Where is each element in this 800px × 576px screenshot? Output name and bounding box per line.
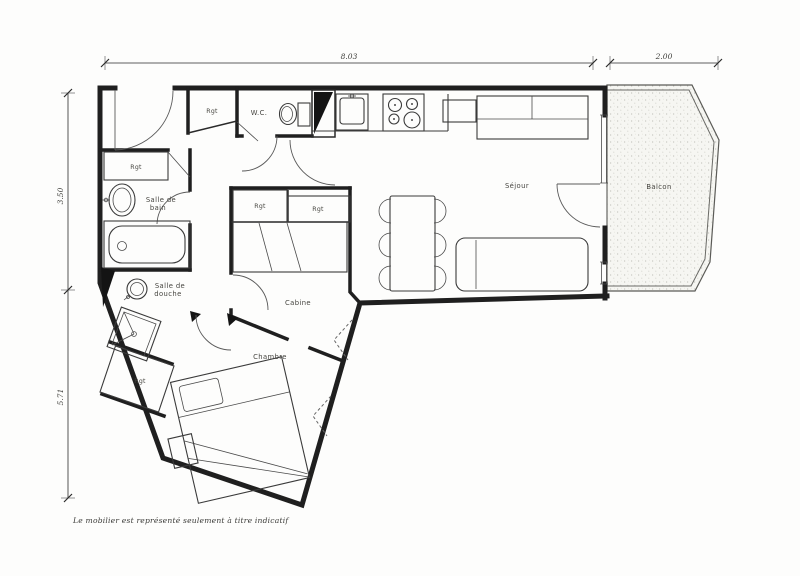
label-salle-de-douche-1: Salle de [155, 282, 185, 290]
sideboard-large [477, 96, 588, 139]
wall-wedge-left [190, 311, 201, 322]
label-balcon: Balcon [646, 183, 671, 191]
label-rgt-bath: Rgt [130, 164, 142, 171]
floor-plan-drawing: 8.03 2.00 3.50 5.71 [0, 0, 800, 576]
label-salle-de-bain-2: bain [150, 204, 166, 212]
cabine-door [233, 275, 268, 310]
duct-fill [314, 92, 333, 134]
balcony-door [557, 184, 600, 227]
chair [434, 233, 446, 257]
toilet-fixture [280, 103, 311, 126]
label-rgt-chambre: Rgt [134, 378, 146, 385]
kitchen-counter [312, 94, 448, 131]
label-rgt-cabine-right: Rgt [312, 206, 324, 213]
bathtub [104, 221, 190, 268]
dim-main-width: 8.03 [341, 52, 358, 61]
kitchen-sink [336, 94, 368, 130]
label-chambre: Chambre [253, 353, 287, 361]
cabine-bunk [233, 222, 347, 272]
floor-plan-page: 8.03 2.00 3.50 5.71 [0, 0, 800, 576]
caption-note: Le mobilier est représenté seulement à t… [72, 516, 289, 525]
chair [434, 199, 446, 223]
chair [434, 266, 446, 290]
dim-left-lower: 5.71 [56, 389, 65, 406]
entrance-door [115, 90, 173, 150]
chambre-door [196, 315, 231, 350]
label-wc: W.C. [251, 109, 268, 117]
stove [383, 94, 424, 131]
cabine-furniture [233, 190, 350, 272]
label-salle-de-bain-1: Salle de [146, 196, 176, 204]
chair [379, 233, 391, 257]
chair [379, 266, 391, 290]
sejour-furniture [379, 96, 588, 291]
label-cabine: Cabine [285, 299, 311, 307]
dim-balcony-width: 2.00 [655, 52, 673, 61]
label-rgt-cabine-left: Rgt [254, 203, 266, 210]
dining-table [379, 196, 446, 291]
label-salle-de-douche-2: douche [154, 290, 181, 298]
double-bed [171, 357, 310, 503]
kitchen-door [290, 140, 335, 185]
chair [379, 199, 391, 223]
room-labels: W.C. Séjour Balcon Cabine Chambre Salle … [130, 108, 671, 385]
washbasin [102, 184, 135, 216]
interior-walls [100, 88, 360, 416]
wc-door [242, 136, 277, 171]
label-rgt-entry: Rgt [206, 108, 218, 115]
shower-basin [124, 279, 147, 300]
kitchen-fixtures [280, 94, 449, 131]
bath-closet-flap [168, 152, 190, 177]
label-sejour: Séjour [505, 182, 529, 190]
dim-left-upper: 3.50 [56, 187, 65, 204]
sofa [456, 238, 588, 291]
